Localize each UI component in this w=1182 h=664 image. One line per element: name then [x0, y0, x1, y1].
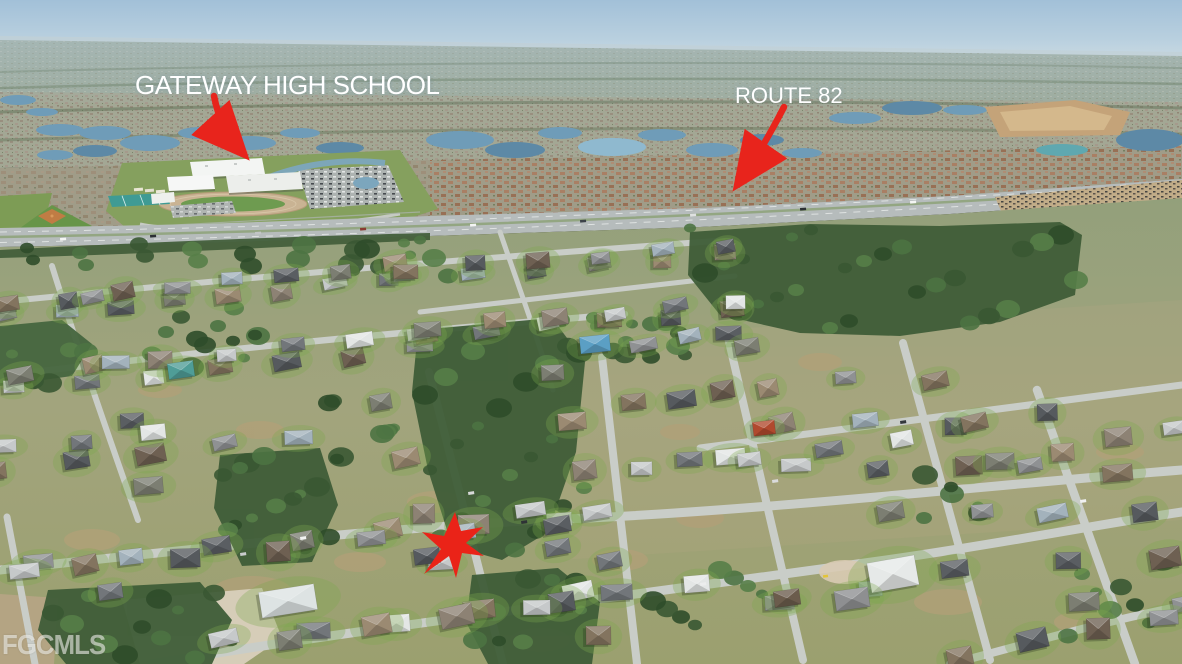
property-marker-star-icon — [422, 512, 484, 578]
aerial-photo: GATEWAY HIGH SCHOOL ROUTE 82 FGCMLS — [0, 0, 1182, 664]
school-label: GATEWAY HIGH SCHOOL — [135, 70, 439, 101]
school-arrow-icon — [214, 96, 241, 151]
route-label: ROUTE 82 — [735, 83, 843, 109]
route-arrow-icon — [740, 107, 784, 181]
mls-watermark: FGCMLS — [2, 629, 105, 661]
